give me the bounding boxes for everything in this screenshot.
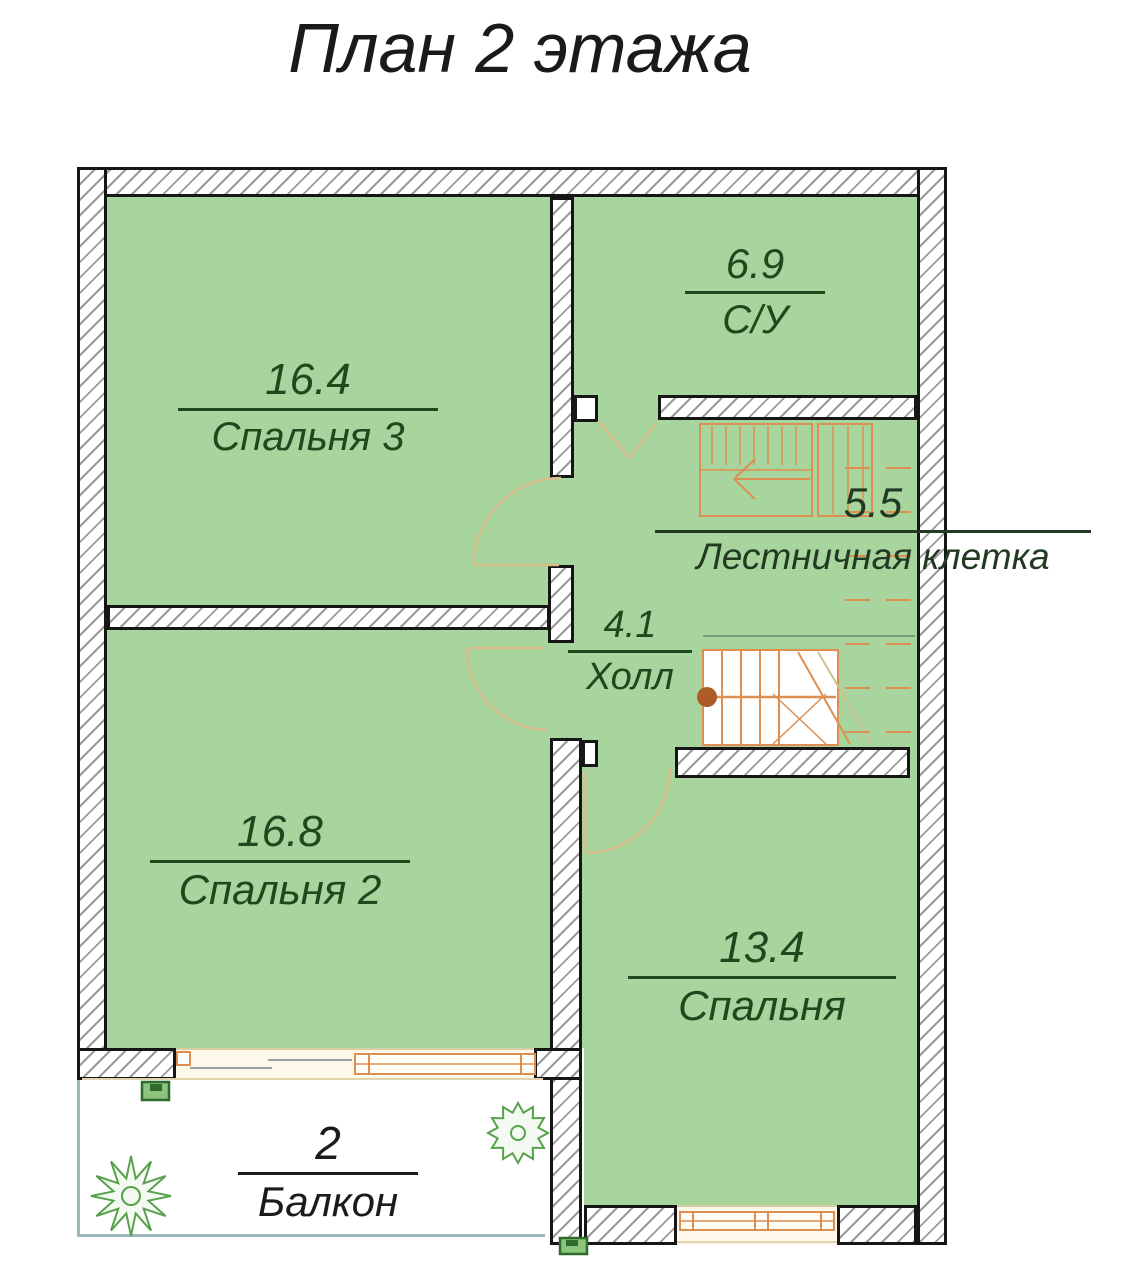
room-name: Балкон [238,1180,418,1224]
wall-bedroom3-bathroom [550,197,574,478]
window-band-bedroom [677,1205,837,1245]
room-name: Холл [568,658,692,698]
wall-bathroom-bottom [658,395,917,420]
room-area-value: 16.8 [150,810,410,854]
page-title: План 2 этажа [230,8,810,88]
room-name: Спальня 2 [150,868,410,912]
fraction-bar [568,650,692,653]
wall-exterior-left [77,167,107,1080]
room-label-hall: 4.1 Холл [568,606,692,698]
room-label-staircase: 5.5 Лестничная клетка [655,482,1091,577]
room-area-value: 5.5 [655,482,1091,524]
window-band-bedroom2 [176,1048,537,1080]
fraction-bar [150,860,410,863]
room-label-balcony: 2 Балкон [238,1120,418,1224]
room-area-value: 2 [238,1120,418,1166]
fraction-bar [238,1172,418,1175]
room-area-value: 6.9 [685,243,825,285]
wall-bedroom2-bottom-left [77,1048,176,1080]
wall-bedroom2-bottom-right [534,1048,582,1080]
room-label-bedroom: 13.4 Спальня [628,926,896,1028]
fraction-bar [628,976,896,979]
room-name: С/У [685,299,825,341]
room-name: Спальня [628,984,896,1028]
fraction-bar [178,408,438,411]
room-fill-bedroom-lower [584,1048,917,1205]
wall-bedroom-bottom-right [837,1205,917,1245]
wall-exterior-top [77,167,947,197]
door-jamb-bathroom [574,395,598,422]
door-jamb-bedroom [582,740,598,767]
room-name: Лестничная клетка [655,538,1091,577]
room-area-value: 13.4 [628,926,896,970]
room-label-bedroom2: 16.8 Спальня 2 [150,810,410,912]
wall-exterior-right [917,167,947,1245]
room-area-value: 4.1 [568,606,692,644]
floor-plan-page: План 2 этажа [0,0,1124,1280]
wall-bedroom3-bedroom2 [107,605,550,630]
room-name: Спальня 3 [178,416,438,458]
wall-bedroom2-right [550,738,582,1245]
room-area-value: 16.4 [178,358,438,402]
fraction-bar [685,291,825,294]
wall-stairwell-bottom [675,747,910,778]
room-label-bedroom3: 16.4 Спальня 3 [178,358,438,458]
room-label-bathroom: 6.9 С/У [685,243,825,341]
wall-bedroom-bottom-left [584,1205,677,1245]
fraction-bar [655,530,1091,533]
